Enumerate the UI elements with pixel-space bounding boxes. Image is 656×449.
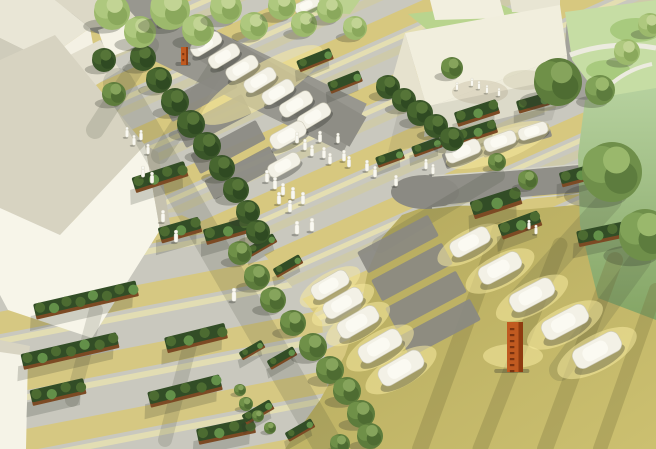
architectural-rendering <box>0 0 656 449</box>
parking-plaza-scene <box>0 0 656 449</box>
